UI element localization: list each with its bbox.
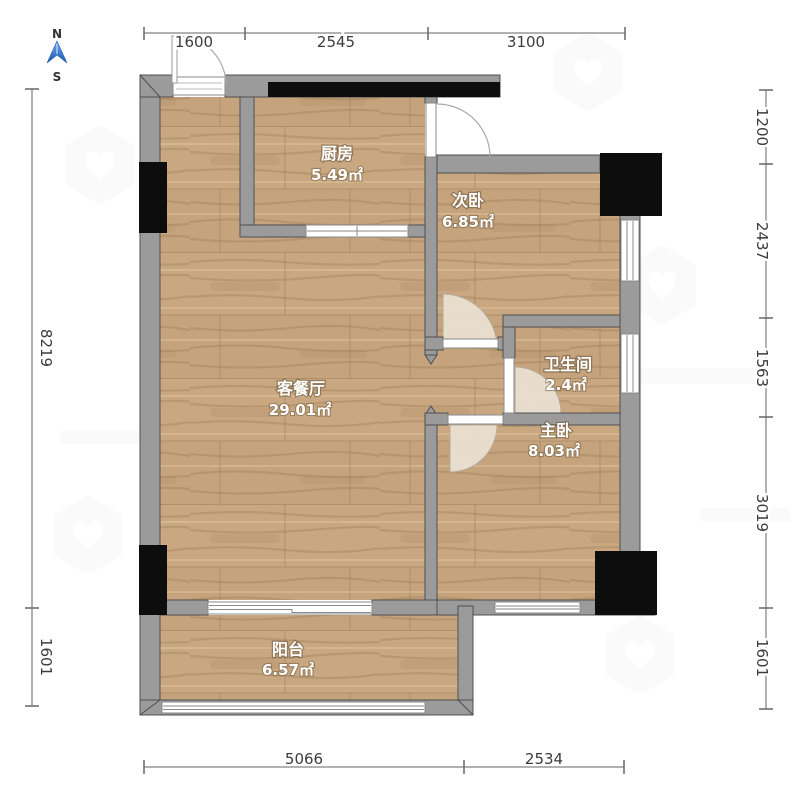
- master-bedroom-window: [495, 602, 580, 613]
- second-bedroom-window: [621, 220, 639, 281]
- living-dining-name: 客餐厅: [277, 379, 325, 398]
- master-bedroom-area: 8.03㎡: [528, 442, 580, 460]
- floor-plan-page: 厨房 5.49㎡ 次卧 6.85㎡ 客餐厅 29.01㎡ 卫生间 2.4㎡ 主卧…: [0, 0, 800, 800]
- dim-top-1600: 1600: [175, 33, 213, 51]
- kitchen-area: 5.49㎡: [311, 166, 363, 184]
- living-dining-area: 29.01㎡: [269, 401, 331, 419]
- bathroom-name: 卫生间: [544, 355, 592, 374]
- dim-top-2545: 2545: [317, 33, 355, 51]
- second-bedroom-name: 次卧: [452, 191, 484, 210]
- master-bedroom-name: 主卧: [540, 421, 572, 440]
- kitchen-pass-window: [306, 225, 408, 237]
- dim-left-8219: 8219: [37, 329, 55, 367]
- dim-bottom-2534: 2534: [525, 750, 563, 768]
- column-top-right: [600, 153, 662, 216]
- compass-north-label: N: [52, 27, 62, 41]
- dim-right-1563: 1563: [753, 349, 771, 387]
- master-bedroom-door: [448, 415, 503, 424]
- balcony-sliding-door: [208, 602, 372, 614]
- bathroom-area: 2.4㎡: [545, 376, 587, 394]
- dim-top-3100: 3100: [507, 33, 545, 51]
- dim-left-1601: 1601: [37, 638, 55, 676]
- kitchen-door: [426, 103, 490, 157]
- balcony-floor: [160, 615, 458, 700]
- column-top-left: [139, 162, 167, 233]
- balcony-window: [162, 702, 425, 713]
- compass-south-label: S: [53, 70, 62, 84]
- second-bedroom-area: 6.85㎡: [442, 213, 494, 231]
- column-bottom-left: [139, 545, 167, 615]
- kitchen-name: 厨房: [321, 144, 353, 163]
- floor-plan-canvas: 厨房 5.49㎡ 次卧 6.85㎡ 客餐厅 29.01㎡ 卫生间 2.4㎡ 主卧…: [0, 0, 800, 800]
- balcony-name: 阳台: [272, 640, 304, 659]
- dim-right-3019: 3019: [753, 494, 771, 532]
- dim-right-1601: 1601: [753, 639, 771, 677]
- second-bedroom-door: [443, 339, 498, 348]
- bathroom-door: [504, 358, 514, 413]
- column-bottom-right: [595, 551, 657, 615]
- dim-bottom-5066: 5066: [285, 750, 323, 768]
- compass: N S: [47, 27, 67, 84]
- kitchen-beam: [268, 82, 500, 97]
- dim-right-1200: 1200: [753, 108, 771, 146]
- balcony-area: 6.57㎡: [262, 661, 314, 679]
- bathroom-window: [621, 334, 639, 393]
- dim-right-2437: 2437: [753, 222, 771, 260]
